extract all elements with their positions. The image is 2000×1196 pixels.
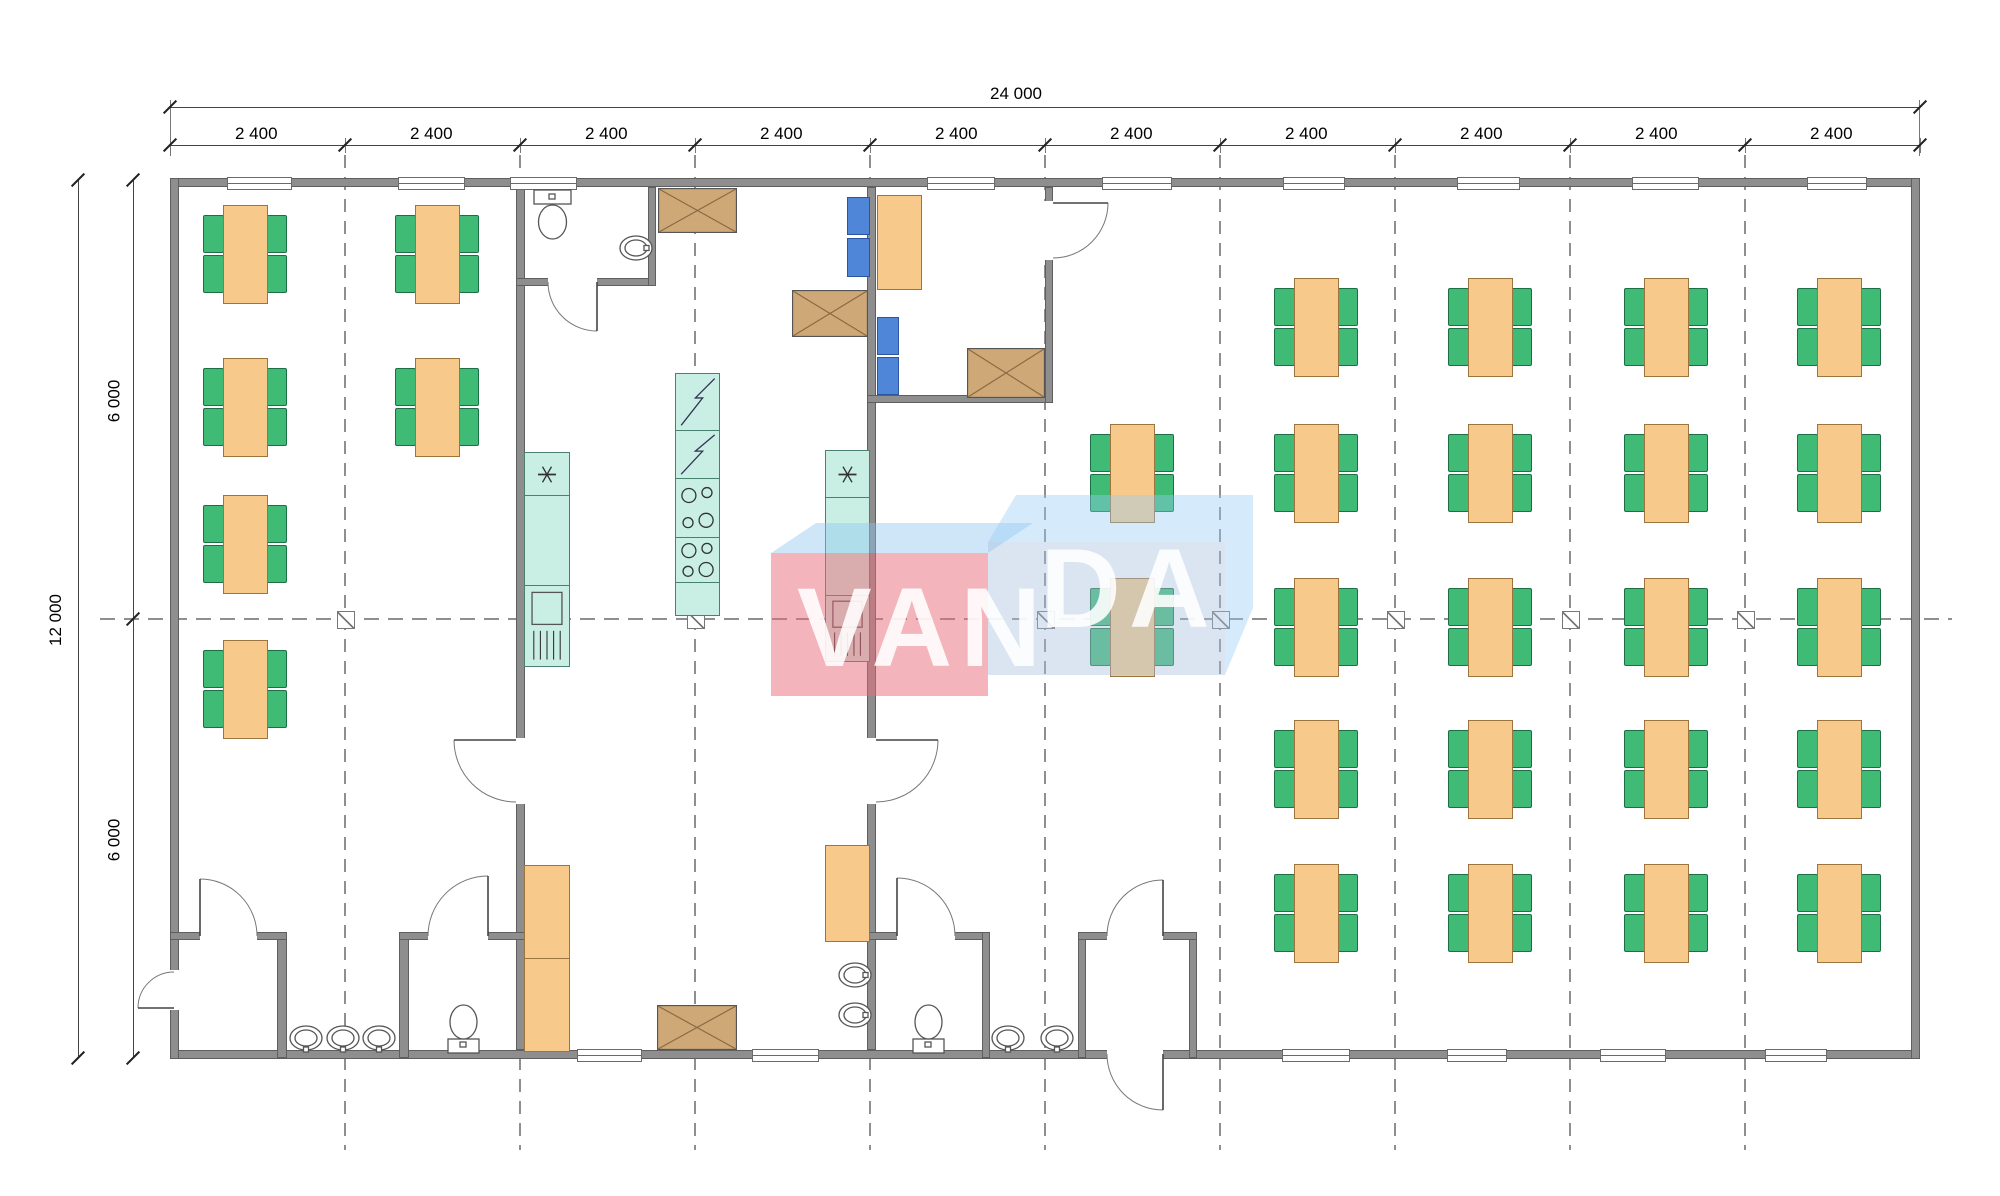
watermark-text-right: DA [1040,533,1218,645]
main-vestibule-inner-door [1107,880,1163,936]
bay-dimension-label: 2 400 [1285,124,1328,144]
bay-dimension-label: 2 400 [935,124,978,144]
dimension-line-total-width [170,107,1920,108]
bay-dimension-label: 2 400 [235,124,278,144]
entry-left-door [138,972,174,1008]
floor-plan-sheet: VAN DA 24 000 12 000 6 000 6 000 2 4002 … [0,0,2000,1196]
dimension-line-total-height [78,180,79,1058]
total-height-label: 12 000 [46,594,66,646]
half-height-label-top: 6 000 [104,380,124,423]
watermark-text-left: VAN [797,572,1049,684]
wc-top-door [548,282,597,331]
wc-mid-door [897,878,955,936]
bay-dimension-label: 2 400 [1110,124,1153,144]
kitchen-to-left-room-door [454,740,516,802]
bay-dimension-label: 2 400 [760,124,803,144]
bay-dimension-label: 2 400 [1460,124,1503,144]
half-height-label-bottom: 6 000 [104,819,124,862]
kitchen-to-hall-door [876,740,938,802]
entry-vestibule-inner-door [200,879,257,936]
wc-left-door [428,876,488,936]
bay-dimension-label: 2 400 [1635,124,1678,144]
main-vestibule-outer-door [1107,1054,1163,1110]
bay-dimension-label: 2 400 [585,124,628,144]
bay-dimension-label: 2 400 [410,124,453,144]
office-door [1053,203,1108,258]
bay-dimension-label: 2 400 [1810,124,1853,144]
total-width-label: 24 000 [990,84,1042,104]
